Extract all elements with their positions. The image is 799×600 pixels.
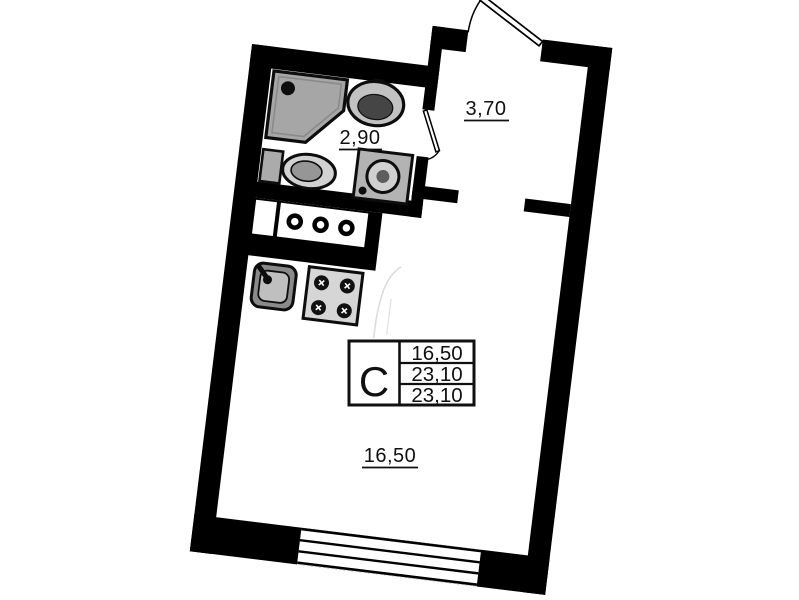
window-opening bbox=[297, 528, 481, 587]
entrance-door-swing-arc bbox=[468, 0, 484, 34]
plan-rotated-group bbox=[190, 0, 617, 595]
vent-duct-circle bbox=[288, 215, 301, 228]
stamp-table: С 16,50 23,10 23,10 bbox=[349, 341, 474, 407]
stamp-value-row3: 23,10 bbox=[411, 384, 462, 407]
area-label-bathroom-text: 2,90 bbox=[340, 127, 381, 149]
entrance-door bbox=[468, 0, 548, 46]
shower-tray bbox=[266, 71, 348, 147]
area-label-living-room-text: 16,50 bbox=[364, 445, 417, 467]
vent-duct-circle bbox=[314, 218, 327, 231]
floor-plan-page: 2,90 3,70 16,50 С 16,50 23,10 23,10 bbox=[0, 0, 799, 600]
bathroom-door-leaf bbox=[419, 109, 445, 152]
area-label-bathroom: 2,90 bbox=[339, 127, 382, 150]
area-label-hallway: 3,70 bbox=[464, 98, 509, 121]
floor-plan-svg: 2,90 3,70 16,50 С 16,50 23,10 23,10 bbox=[0, 0, 799, 600]
toilet-tank bbox=[259, 149, 283, 183]
entrance-door-leaf bbox=[475, 0, 547, 46]
wall-top-hall-left bbox=[430, 26, 468, 52]
stamp-value-row2: 23,10 bbox=[411, 363, 462, 386]
kitchen-sink bbox=[250, 262, 297, 311]
wall-stub-hall-right bbox=[524, 199, 571, 218]
area-label-hallway-text: 3,70 bbox=[466, 98, 507, 120]
area-label-living-room: 16,50 bbox=[362, 445, 418, 468]
stove bbox=[303, 267, 363, 325]
window bbox=[297, 528, 481, 587]
vent-niche bbox=[252, 200, 277, 236]
washing-machine bbox=[353, 149, 413, 204]
stove-body bbox=[303, 267, 363, 325]
vent-duct-circle bbox=[340, 221, 353, 234]
bathroom-door bbox=[417, 109, 444, 162]
stamp-type-letter: С bbox=[359, 358, 389, 405]
erased-fixture-ghost bbox=[374, 265, 401, 341]
wall-right bbox=[523, 45, 612, 595]
stamp-value-row1: 16,50 bbox=[411, 342, 462, 365]
